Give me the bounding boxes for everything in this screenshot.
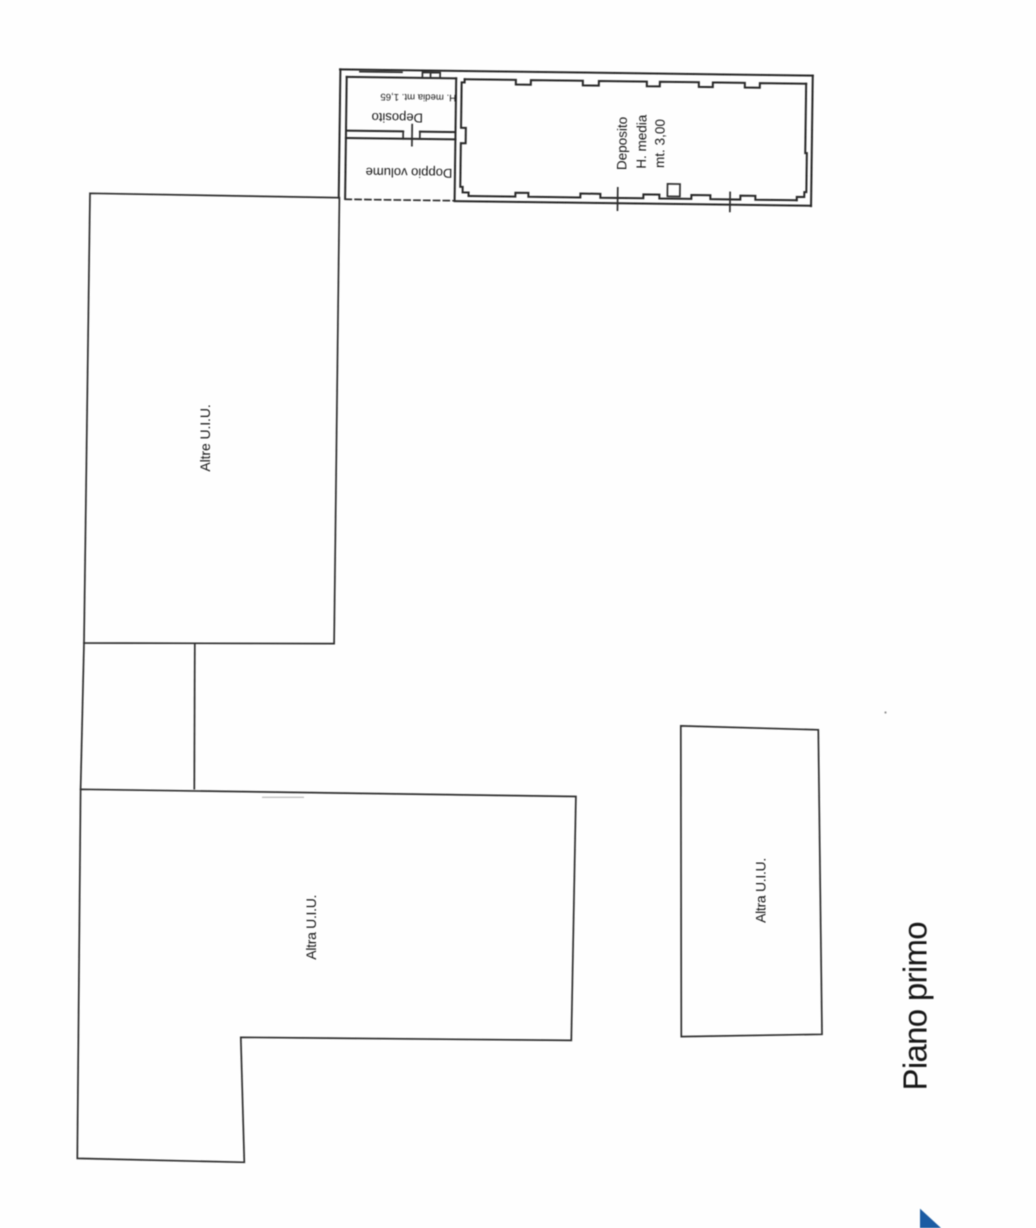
svg-text:Altra U.I.U.: Altra U.I.U. [753,858,769,923]
svg-text:Doppio volume: Doppio volume [365,165,452,181]
svg-text:Deposito: Deposito [372,110,424,126]
svg-text:H. media mt. 1,65: H. media mt. 1,65 [380,91,456,103]
svg-text:Deposito: Deposito [614,117,630,170]
svg-text:Altra U.I.U.: Altra U.I.U. [303,895,319,960]
svg-text:Piano primo: Piano primo [897,922,934,1090]
svg-text:Altre U.I.U.: Altre U.I.U. [197,404,213,471]
svg-text:mt. 3,00: mt. 3,00 [652,119,668,168]
svg-text:H. media: H. media [634,114,650,169]
